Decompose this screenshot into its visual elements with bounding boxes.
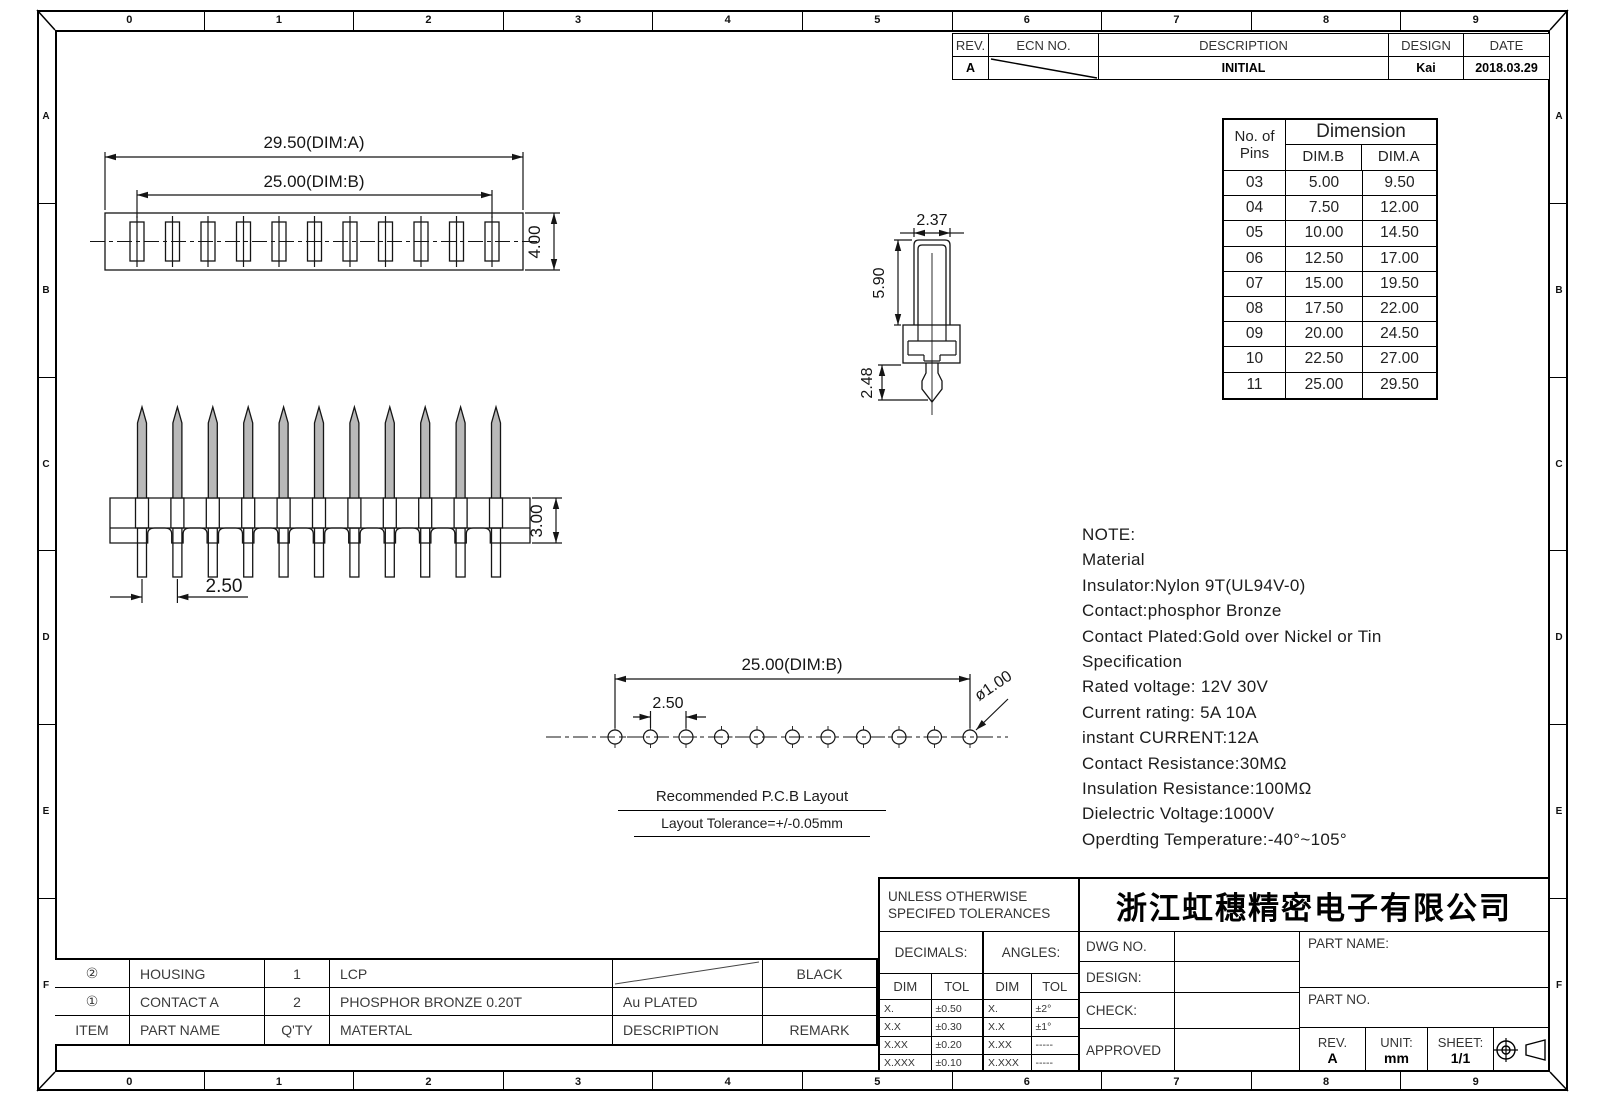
table-row: 0510.0014.50 bbox=[1224, 221, 1436, 246]
tol-cell: ±0.50 bbox=[932, 1000, 983, 1017]
dim-b-cell: 25.00 bbox=[1286, 373, 1363, 398]
description-value: INITIAL bbox=[1099, 57, 1389, 79]
approved-row: APPROVED bbox=[1080, 1029, 1299, 1072]
date-value: 2018.03.29 bbox=[1464, 57, 1549, 79]
dim-b-cell: 15.00 bbox=[1286, 272, 1363, 296]
angles-label: ANGLES: bbox=[984, 932, 1078, 974]
note-line: Insulation Resistance:100MΩ bbox=[1082, 776, 1512, 801]
height-label: 3.00 bbox=[527, 504, 546, 537]
tol-cell: ±0.10 bbox=[932, 1055, 983, 1072]
remark-cell: BLACK bbox=[763, 960, 876, 987]
tol-cell: ±2° bbox=[1032, 1000, 1079, 1017]
grid-column-label: 5 bbox=[803, 10, 953, 30]
company-name: 浙江虹穗精密电子有限公司 bbox=[1080, 879, 1548, 932]
pcb-layout-drawing: 25.00(DIM:B) 2.50 ø1.00 bbox=[538, 638, 1022, 763]
grid-row-label: E bbox=[37, 725, 55, 899]
bom-table: ② HOUSING 1 LCP BLACK ① CONTACT A 2 PHOS… bbox=[55, 958, 878, 1046]
tolerance-row: X.X±0.30 bbox=[880, 1018, 982, 1036]
sheet-label: SHEET: bbox=[1438, 1035, 1484, 1050]
tolerance-row: X.X±1° bbox=[984, 1018, 1078, 1036]
ecn-value bbox=[989, 57, 1099, 79]
height-label: 4.00 bbox=[525, 225, 544, 258]
tolerance-title: UNLESS OTHERWISE SPECIFED TOLERANCES bbox=[880, 879, 1078, 932]
pitch-label: 2.50 bbox=[206, 576, 243, 597]
dim-b-label: 25.00(DIM:B) bbox=[263, 172, 364, 191]
dim-a-cell: 17.00 bbox=[1363, 247, 1436, 271]
grid-row-label: F bbox=[37, 899, 55, 1072]
table-row: 0817.5022.00 bbox=[1224, 297, 1436, 322]
tolerance-row: X.XXX----- bbox=[984, 1055, 1078, 1072]
pins-header-line2: Pins bbox=[1240, 145, 1269, 162]
note-line: instant CURRENT:12A bbox=[1082, 725, 1512, 750]
dim-a-cell: 24.50 bbox=[1363, 322, 1436, 346]
dim-header: DIM bbox=[880, 974, 932, 999]
dim-a-cell: 29.50 bbox=[1363, 373, 1436, 398]
grid-row-label: B bbox=[1550, 204, 1568, 378]
tolerance-title-line2: SPECIFED TOLERANCES bbox=[888, 905, 1078, 922]
pitch-label: 2.50 bbox=[652, 695, 683, 712]
grid-column-label: 0 bbox=[55, 10, 205, 30]
grid-row-label: E bbox=[1550, 725, 1568, 899]
unit-value: mm bbox=[1384, 1050, 1409, 1066]
rev-cell: REV. A bbox=[1300, 1028, 1366, 1072]
rev-value: A bbox=[953, 57, 989, 79]
angles-dim-tol-header: DIM TOL bbox=[984, 974, 1078, 1000]
qty-header: Q'TY bbox=[265, 1016, 330, 1044]
table-row: 1125.0029.50 bbox=[1224, 373, 1436, 398]
decimals-dim-tol-header: DIM TOL bbox=[880, 974, 982, 1000]
dimension-span-header: Dimension bbox=[1286, 120, 1436, 145]
item-cell: ② bbox=[55, 960, 130, 987]
third-angle-projection-icon bbox=[1494, 1035, 1548, 1065]
note-line: Specification bbox=[1082, 649, 1512, 674]
dim-a-cell: 27.00 bbox=[1363, 347, 1436, 371]
approved-value bbox=[1175, 1029, 1299, 1072]
grid-column-label: 9 bbox=[1401, 10, 1550, 30]
border-row-labels-left: ABCDEF bbox=[37, 30, 55, 1072]
grid-column-label: 6 bbox=[953, 10, 1103, 30]
pins-cell: 03 bbox=[1224, 171, 1286, 195]
design-value bbox=[1175, 962, 1299, 992]
pins-cell: 05 bbox=[1224, 221, 1286, 245]
grid-column-label: 2 bbox=[354, 1072, 504, 1091]
description-cell: Au PLATED bbox=[613, 988, 763, 1015]
border-column-labels-top: 0123456789 bbox=[55, 10, 1550, 30]
part-name-cell: CONTACT A bbox=[130, 988, 265, 1015]
grid-column-label: 6 bbox=[953, 1072, 1103, 1091]
dim-cell: X.X bbox=[880, 1018, 932, 1035]
material-cell: LCP bbox=[330, 960, 613, 987]
grid-column-label: 5 bbox=[803, 1072, 953, 1091]
grid-column-label: 7 bbox=[1102, 1072, 1252, 1091]
revision-header-row: REV. ECN NO. DESCRIPTION DESIGN DATE bbox=[953, 34, 1549, 57]
front-view-drawing: 3.00 2.50 bbox=[98, 393, 576, 615]
ecn-header: ECN NO. bbox=[989, 34, 1099, 56]
tolerance-row: X.XX----- bbox=[984, 1037, 1078, 1055]
approved-label: APPROVED bbox=[1080, 1029, 1175, 1072]
description-header: DESCRIPTION bbox=[613, 1016, 763, 1044]
tolerance-row: X.±2° bbox=[984, 1000, 1078, 1018]
projection-symbol-cell bbox=[1494, 1028, 1548, 1072]
dim-a-cell: 12.00 bbox=[1363, 196, 1436, 220]
note-line: Insulator:Nylon 9T(UL94V-0) bbox=[1082, 573, 1512, 598]
design-row: DESIGN: bbox=[1080, 962, 1299, 993]
item-header: ITEM bbox=[55, 1016, 130, 1044]
dim-b-header: DIM.B bbox=[1286, 145, 1362, 170]
tolerance-title-line1: UNLESS OTHERWISE bbox=[888, 888, 1078, 905]
note-line: NOTE: bbox=[1082, 522, 1512, 547]
revision-row: A INITIAL Kai 2018.03.29 bbox=[953, 57, 1549, 79]
dim-b-cell: 7.50 bbox=[1286, 196, 1363, 220]
pins-cell: 06 bbox=[1224, 247, 1286, 271]
tol-cell: ±0.30 bbox=[932, 1018, 983, 1035]
dim-cell: X.XX bbox=[880, 1037, 932, 1054]
border-row-labels-right: ABCDEF bbox=[1550, 30, 1568, 1072]
note-line: Contact Resistance:30MΩ bbox=[1082, 751, 1512, 776]
dimension-table-header: No. of Pins Dimension DIM.B DIM.A bbox=[1224, 120, 1436, 171]
dim-b-cell: 10.00 bbox=[1286, 221, 1363, 245]
grid-column-label: 8 bbox=[1252, 10, 1402, 30]
tolerance-row: X.±0.50 bbox=[880, 1000, 982, 1018]
pins-cell: 09 bbox=[1224, 322, 1286, 346]
part-name-cell: PART NAME: bbox=[1300, 932, 1548, 988]
unit-cell: UNIT: mm bbox=[1366, 1028, 1428, 1072]
dim-cell: X.XXX bbox=[880, 1055, 932, 1072]
tol-cell: ±0.20 bbox=[932, 1037, 983, 1054]
grid-row-label: A bbox=[1550, 30, 1568, 204]
dim-cell: X. bbox=[984, 1000, 1032, 1017]
tol-cell: ----- bbox=[1032, 1055, 1079, 1072]
remark-header: REMARK bbox=[763, 1016, 876, 1044]
pins-cell: 04 bbox=[1224, 196, 1286, 220]
top-view-drawing: 29.50(DIM:A) 25.00(DIM:B) 4.00 bbox=[88, 130, 580, 295]
grid-column-label: 1 bbox=[205, 10, 355, 30]
dim-a-header: DIM.A bbox=[1362, 145, 1437, 170]
dim-a-cell: 22.00 bbox=[1363, 297, 1436, 321]
unit-label: UNIT: bbox=[1380, 1035, 1413, 1050]
part-name-header: PART NAME bbox=[130, 1016, 265, 1044]
dim-b-cell: 20.00 bbox=[1286, 322, 1363, 346]
ecn-slash bbox=[990, 58, 1098, 79]
dim-b-cell: 22.50 bbox=[1286, 347, 1363, 371]
table-row: 1022.5027.00 bbox=[1224, 347, 1436, 372]
grid-column-label: 8 bbox=[1252, 1072, 1402, 1091]
table-row: 0612.5017.00 bbox=[1224, 247, 1436, 272]
grid-column-label: 2 bbox=[354, 10, 504, 30]
tol-header: TOL bbox=[1032, 974, 1079, 999]
description-header: DESCRIPTION bbox=[1099, 34, 1389, 56]
grid-row-label: C bbox=[37, 378, 55, 552]
dim-a-label: 29.50(DIM:A) bbox=[263, 133, 364, 152]
grid-column-label: 0 bbox=[55, 1072, 205, 1091]
grid-column-label: 7 bbox=[1102, 10, 1252, 30]
dim-header: DIM bbox=[984, 974, 1032, 999]
contact-view-drawing: 2.37 5.90 2.48 bbox=[848, 193, 1013, 423]
pcb-caption-title: Recommended P.C.B Layout bbox=[618, 788, 886, 811]
bom-header-row: ITEM PART NAME Q'TY MATERTAL DESCRIPTION… bbox=[55, 1016, 876, 1044]
dim-b-label: 25.00(DIM:B) bbox=[741, 655, 842, 674]
design-label: DESIGN: bbox=[1080, 962, 1175, 992]
tol-cell: ----- bbox=[1032, 1037, 1079, 1054]
pcb-caption-tolerance: Layout Tolerance=+/-0.05mm bbox=[634, 811, 870, 837]
dim-b-cell: 5.00 bbox=[1286, 171, 1363, 195]
note-line: Contact:phosphor Bronze bbox=[1082, 598, 1512, 623]
table-row: 0920.0024.50 bbox=[1224, 322, 1436, 347]
table-row: 035.009.50 bbox=[1224, 171, 1436, 196]
check-row: CHECK: bbox=[1080, 993, 1299, 1029]
grid-column-label: 1 bbox=[205, 1072, 355, 1091]
revision-table: REV. ECN NO. DESCRIPTION DESIGN DATE A I… bbox=[952, 33, 1550, 80]
dim-cell: X.XXX bbox=[984, 1055, 1032, 1072]
description-cell bbox=[613, 960, 763, 987]
grid-row-label: D bbox=[37, 551, 55, 725]
dim-cell: X.XX bbox=[984, 1037, 1032, 1054]
drawing-sheet: 0123456789 0123456789 ABCDEF ABCDEF REV.… bbox=[0, 0, 1605, 1100]
sheet-value: 1/1 bbox=[1451, 1050, 1470, 1066]
grid-row-label: A bbox=[37, 30, 55, 204]
dim-cell: X.X bbox=[984, 1018, 1032, 1035]
qty-cell: 2 bbox=[265, 988, 330, 1015]
rev-header: REV. bbox=[953, 34, 989, 56]
table-row: ② HOUSING 1 LCP BLACK bbox=[55, 960, 876, 988]
table-row: ① CONTACT A 2 PHOSPHOR BRONZE 0.20T Au P… bbox=[55, 988, 876, 1016]
grid-column-label: 4 bbox=[653, 1072, 803, 1091]
description-slash bbox=[613, 960, 761, 986]
height-label: 5.90 bbox=[871, 267, 888, 298]
rev-label: REV. bbox=[1318, 1035, 1347, 1050]
tolerance-row: X.XX±0.20 bbox=[880, 1037, 982, 1055]
sheet-cell: SHEET: 1/1 bbox=[1428, 1028, 1494, 1072]
material-header: MATERTAL bbox=[330, 1016, 613, 1044]
decimals-label: DECIMALS: bbox=[880, 932, 982, 974]
angles-column: ANGLES: DIM TOL X.±2° X.X±1° X.XX----- X… bbox=[984, 932, 1078, 1072]
dwg-no-row: DWG NO. bbox=[1080, 932, 1299, 962]
item-cell: ① bbox=[55, 988, 130, 1015]
width-label: 2.37 bbox=[916, 212, 947, 229]
part-name-cell: HOUSING bbox=[130, 960, 265, 987]
date-header: DATE bbox=[1464, 34, 1549, 56]
dimension-table: No. of Pins Dimension DIM.B DIM.A 035.00… bbox=[1222, 118, 1438, 400]
qty-cell: 1 bbox=[265, 960, 330, 987]
note-line: Current rating: 5A 10A bbox=[1082, 700, 1512, 725]
dim-a-cell: 14.50 bbox=[1363, 221, 1436, 245]
dwg-no-value bbox=[1175, 932, 1299, 961]
grid-row-label: C bbox=[1550, 378, 1568, 552]
grid-row-label: F bbox=[1550, 899, 1568, 1072]
pins-cell: 10 bbox=[1224, 347, 1286, 371]
check-value bbox=[1175, 993, 1299, 1028]
dim-a-cell: 19.50 bbox=[1363, 272, 1436, 296]
pins-header: No. of Pins bbox=[1224, 120, 1286, 170]
tol-cell: ±1° bbox=[1032, 1018, 1079, 1035]
tol-header: TOL bbox=[932, 974, 983, 999]
hole-dia-label: ø1.00 bbox=[972, 668, 1016, 705]
note-line: Operdting Temperature:-40°~105° bbox=[1082, 827, 1512, 852]
pcb-caption: Recommended P.C.B Layout Layout Toleranc… bbox=[618, 788, 886, 837]
dim-b-cell: 12.50 bbox=[1286, 247, 1363, 271]
note-line: Contact Plated:Gold over Nickel or Tin bbox=[1082, 624, 1512, 649]
material-cell: PHOSPHOR BRONZE 0.20T bbox=[330, 988, 613, 1015]
pins-header-line1: No. of bbox=[1234, 128, 1274, 145]
note-line: Dielectric Voltage:1000V bbox=[1082, 801, 1512, 826]
grid-row-label: B bbox=[37, 204, 55, 378]
border-column-labels-bottom: 0123456789 bbox=[55, 1072, 1550, 1091]
rev-value: A bbox=[1327, 1050, 1337, 1066]
pins-cell: 08 bbox=[1224, 297, 1286, 321]
tail-label: 2.48 bbox=[859, 367, 876, 398]
design-value: Kai bbox=[1389, 57, 1464, 79]
grid-column-label: 9 bbox=[1401, 1072, 1550, 1091]
title-block: 浙江虹穗精密电子有限公司 DWG NO. DESIGN: CHECK: APPR… bbox=[1080, 877, 1550, 1072]
notes-block: NOTE: Material Insulator:Nylon 9T(UL94V-… bbox=[1082, 522, 1512, 852]
grid-column-label: 3 bbox=[504, 10, 654, 30]
part-no-cell: PART NO. bbox=[1300, 988, 1548, 1028]
tolerance-row: X.XXX±0.10 bbox=[880, 1055, 982, 1072]
dwg-no-label: DWG NO. bbox=[1080, 932, 1175, 961]
dim-b-cell: 17.50 bbox=[1286, 297, 1363, 321]
tolerance-block: UNLESS OTHERWISE SPECIFED TOLERANCES DEC… bbox=[878, 877, 1080, 1072]
grid-column-label: 3 bbox=[504, 1072, 654, 1091]
decimals-column: DECIMALS: DIM TOL X.±0.50 X.X±0.30 X.XX±… bbox=[880, 932, 984, 1072]
design-header: DESIGN bbox=[1389, 34, 1464, 56]
dim-cell: X. bbox=[880, 1000, 932, 1017]
table-row: 047.5012.00 bbox=[1224, 196, 1436, 221]
table-row: 0715.0019.50 bbox=[1224, 272, 1436, 297]
grid-row-label: D bbox=[1550, 551, 1568, 725]
remark-cell bbox=[763, 988, 876, 1015]
grid-column-label: 4 bbox=[653, 10, 803, 30]
note-line: Rated voltage: 12V 30V bbox=[1082, 674, 1512, 699]
pins-cell: 11 bbox=[1224, 373, 1286, 398]
pins-cell: 07 bbox=[1224, 272, 1286, 296]
note-line: Material bbox=[1082, 547, 1512, 572]
dim-a-cell: 9.50 bbox=[1363, 171, 1436, 195]
check-label: CHECK: bbox=[1080, 993, 1175, 1028]
